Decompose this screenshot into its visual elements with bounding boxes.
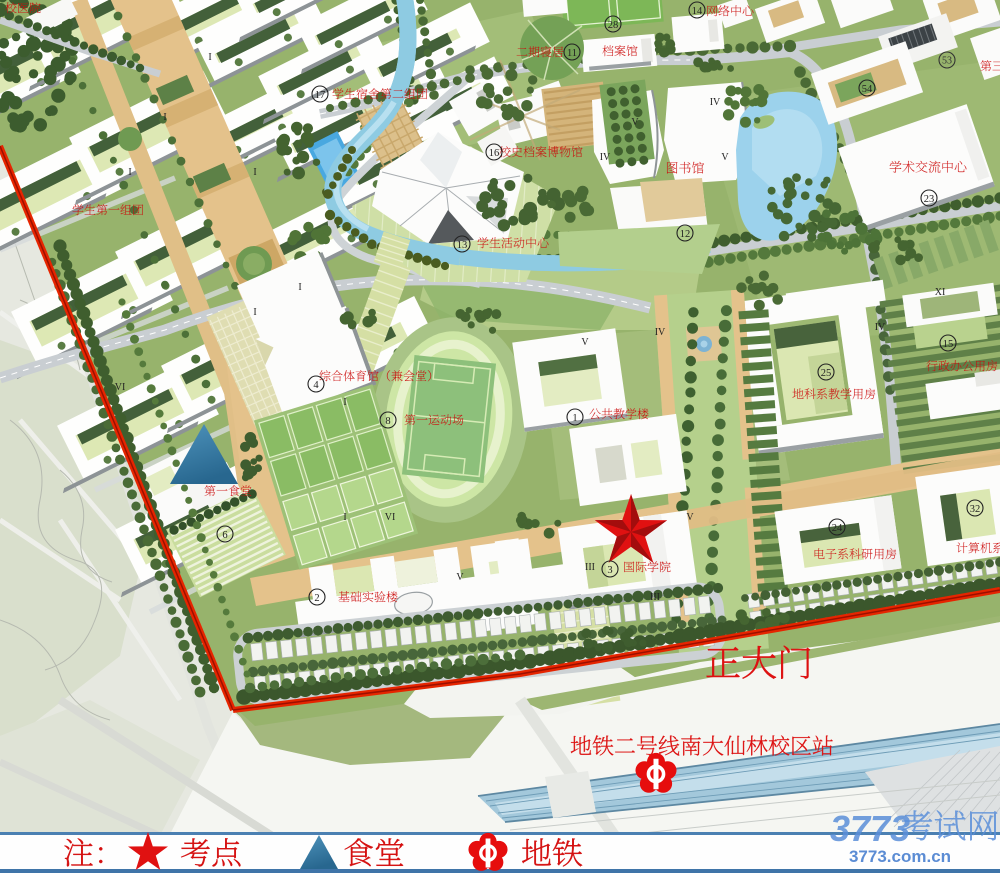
svg-text:3773.com.cn: 3773.com.cn [849, 847, 951, 866]
svg-text:3: 3 [607, 565, 612, 576]
svg-text:53: 53 [942, 56, 952, 67]
svg-text:IV: IV [600, 152, 611, 163]
svg-text:I: I [253, 167, 256, 178]
svg-text:14: 14 [692, 6, 703, 17]
svg-text:V: V [721, 152, 729, 163]
svg-text:V: V [631, 117, 639, 128]
svg-text:IV: IV [655, 327, 666, 338]
svg-text:16: 16 [489, 148, 500, 159]
svg-text:54: 54 [862, 84, 873, 95]
svg-text:I: I [208, 52, 211, 63]
svg-text:17: 17 [315, 90, 326, 101]
svg-text:28: 28 [608, 20, 619, 31]
svg-text:25: 25 [821, 368, 832, 379]
svg-text:13: 13 [457, 240, 468, 251]
svg-text:12: 12 [680, 229, 691, 240]
svg-text:III: III [650, 592, 660, 603]
svg-text:4: 4 [313, 380, 319, 391]
svg-text:I: I [298, 282, 301, 293]
svg-text:8: 8 [385, 416, 390, 427]
svg-text:I: I [343, 397, 346, 408]
svg-text:V: V [456, 572, 464, 583]
svg-text:11: 11 [567, 48, 577, 59]
svg-text:IV: IV [710, 97, 721, 108]
svg-text:2: 2 [314, 593, 319, 604]
svg-text:1: 1 [572, 413, 577, 424]
svg-text:IV: IV [875, 322, 886, 333]
svg-text:I: I [163, 112, 166, 123]
svg-text:3773: 3773 [830, 808, 910, 849]
svg-text:I: I [128, 167, 131, 178]
svg-text:XI: XI [935, 287, 946, 298]
svg-text:6: 6 [222, 530, 227, 541]
svg-text:V: V [686, 512, 694, 523]
svg-text:32: 32 [970, 504, 981, 515]
svg-text:VI: VI [385, 512, 396, 523]
svg-text:24: 24 [832, 523, 843, 534]
svg-text:23: 23 [924, 194, 935, 205]
svg-text:I: I [253, 307, 256, 318]
svg-text:I: I [343, 512, 346, 523]
svg-text:15: 15 [943, 339, 954, 350]
svg-text:V: V [581, 337, 589, 348]
svg-text:III: III [585, 562, 595, 573]
svg-text:VI: VI [115, 382, 126, 393]
